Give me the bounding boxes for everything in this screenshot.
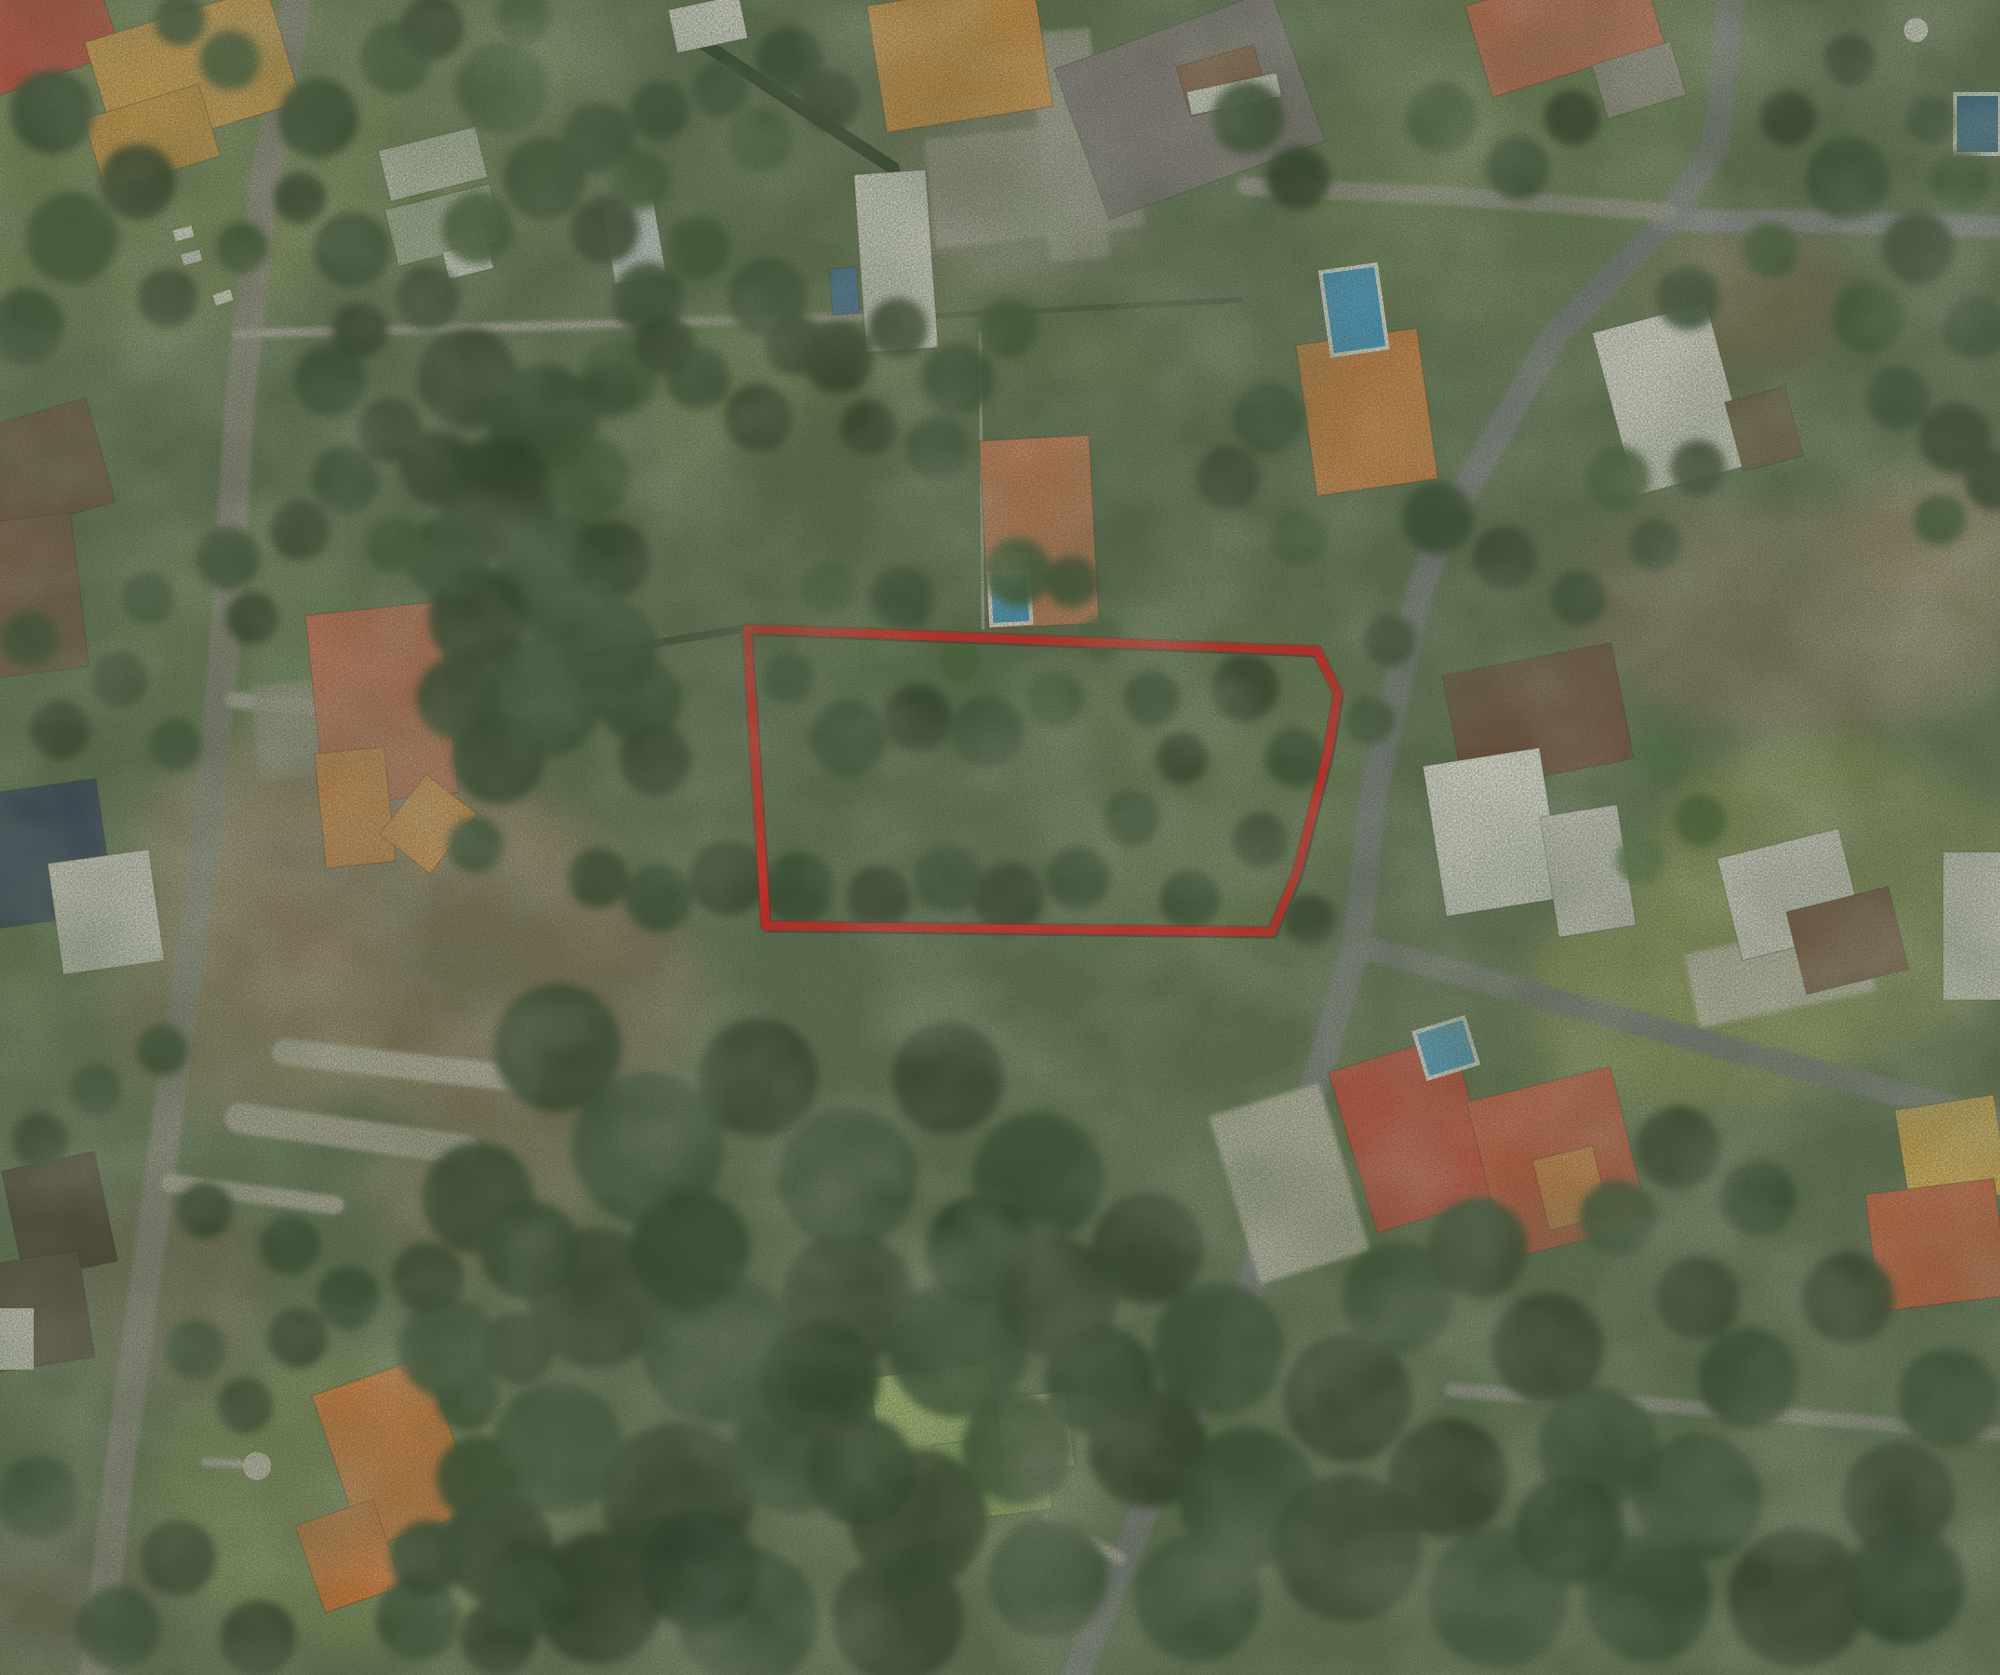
aerial-imagery bbox=[0, 0, 2000, 1675]
satellite-map bbox=[0, 0, 2000, 1675]
grain-overlay bbox=[0, 0, 2000, 1675]
imagery-texture bbox=[0, 0, 2000, 1675]
